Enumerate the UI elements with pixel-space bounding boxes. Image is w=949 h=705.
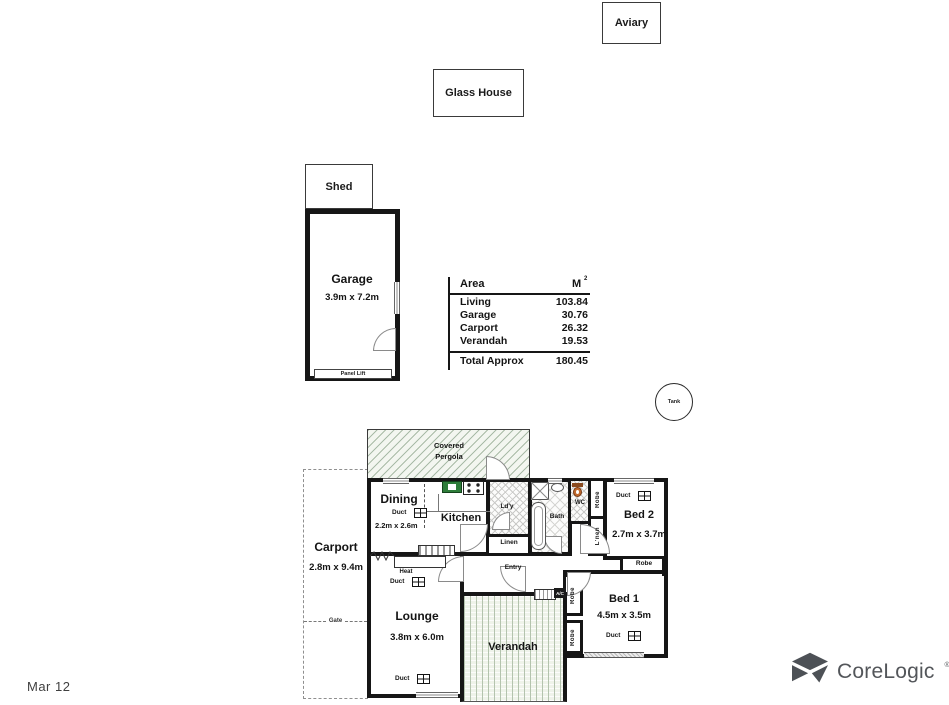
duct-icon	[412, 577, 425, 587]
verandah-label: Verandah	[488, 641, 538, 653]
dining-label: Dining	[380, 492, 417, 506]
kitchen-bench-edge	[438, 494, 439, 511]
robe-label-vertical: Robe	[563, 574, 583, 616]
ac-unit-icon	[534, 589, 556, 600]
entry-label: Entry	[505, 564, 522, 571]
duct-label: Duct	[616, 492, 630, 499]
corelogic-mark-icon	[792, 652, 828, 692]
table-header-unit: M	[572, 278, 581, 290]
carport-area	[303, 469, 368, 699]
lounge-dims: 3.8m x 6.0m	[390, 632, 444, 643]
corelogic-trademark: ®	[945, 662, 949, 669]
linen-label: Linen	[500, 539, 517, 546]
duct-icon	[417, 674, 430, 684]
garage-panel-lift-door: Panel Lift	[314, 369, 392, 379]
table-total-value: 180.45	[520, 355, 588, 367]
garage-window	[394, 282, 400, 314]
heat-label: Heat	[399, 569, 412, 575]
duct-label: Duct	[395, 675, 409, 682]
robe-label: Robe	[636, 560, 652, 567]
kitchen-sink-icon	[442, 481, 462, 493]
laundry-label: Ld'y	[500, 503, 513, 510]
table-row-label: Verandah	[460, 335, 507, 347]
date-label: Mar 12	[27, 679, 70, 694]
robe-label-vertical: Robe	[563, 620, 583, 654]
table-row-label: Carport	[460, 322, 498, 334]
table-header-rule	[448, 293, 590, 295]
linen-label-vertical: L'nen	[588, 516, 607, 556]
table-total-rule	[448, 351, 590, 353]
tank-label: Tank	[668, 399, 680, 405]
shower-icon	[531, 482, 549, 500]
carport-dims: 2.8m x 9.4m	[309, 562, 363, 573]
glass-house-label: Glass House	[445, 87, 512, 99]
gate-line: Gate	[304, 618, 367, 624]
table-row-value: 103.84	[520, 296, 588, 308]
bed1-dims: 4.5m x 3.5m	[597, 610, 651, 621]
basin-icon	[551, 483, 564, 492]
duct-icon	[414, 508, 427, 518]
dining-window	[383, 478, 409, 484]
bed2-window	[614, 478, 654, 484]
bed2-label: Bed 2	[624, 509, 654, 521]
gate-label: Gate	[326, 618, 345, 624]
toilet-icon	[572, 483, 583, 497]
wall-segment	[662, 556, 668, 576]
heater-unit-top	[418, 545, 455, 556]
floorplan-page: Aviary Glass House Shed Garage 3.9m x 7.…	[0, 0, 949, 705]
duct-label: Duct	[392, 509, 406, 516]
pergola-label-line1: Covered	[434, 441, 464, 450]
table-header-unit-sup: 2	[584, 276, 587, 282]
duct-label: Duct	[390, 578, 404, 585]
bath-label: Bath	[550, 513, 564, 520]
table-left-rule	[448, 277, 450, 370]
bathtub-icon	[531, 502, 546, 550]
aviary-label: Aviary	[615, 17, 648, 29]
duct-icon	[638, 491, 651, 501]
dining-kitchen-divider	[424, 484, 425, 528]
wc-label: WC	[575, 500, 585, 506]
heater-unit-bottom	[394, 556, 446, 568]
panel-lift-label: Panel Lift	[341, 371, 366, 377]
table-row-value: 26.32	[520, 322, 588, 334]
duct-icon	[628, 631, 641, 641]
lounge-label: Lounge	[395, 609, 438, 623]
table-total-label: Total Approx	[460, 355, 524, 367]
glass-house-outbuilding: Glass House	[433, 69, 524, 117]
bed1-label: Bed 1	[609, 593, 639, 605]
table-header-area: Area	[460, 278, 484, 290]
kitchen-label: Kitchen	[441, 512, 481, 524]
garage-label: Garage	[331, 272, 372, 286]
shed-label: Shed	[326, 181, 353, 193]
bed1-window	[584, 652, 644, 658]
pergola-label-line2: Pergola	[435, 452, 463, 461]
corelogic-logo: CoreLogic®	[792, 652, 949, 692]
heat-zigzag-icon	[370, 551, 396, 561]
corelogic-wordmark: CoreLogic	[837, 660, 935, 684]
duct-label: Duct	[606, 632, 620, 639]
table-row-label: Living	[460, 296, 491, 308]
table-row-value: 30.76	[520, 309, 588, 321]
stove-icon	[463, 481, 484, 495]
robe-label-vertical: Robe	[588, 478, 607, 520]
tank-circle: Tank	[655, 383, 693, 421]
garage-dims: 3.9m x 7.2m	[325, 292, 379, 303]
bed2-dims: 2.7m x 3.7m	[612, 529, 666, 540]
table-row-label: Garage	[460, 309, 496, 321]
shed-outbuilding: Shed	[305, 164, 373, 209]
dining-dims: 2.2m x 2.6m	[375, 521, 418, 530]
carport-label: Carport	[314, 540, 357, 554]
aviary-outbuilding: Aviary	[602, 2, 661, 44]
lounge-window	[416, 692, 458, 698]
table-row-value: 19.53	[520, 335, 588, 347]
